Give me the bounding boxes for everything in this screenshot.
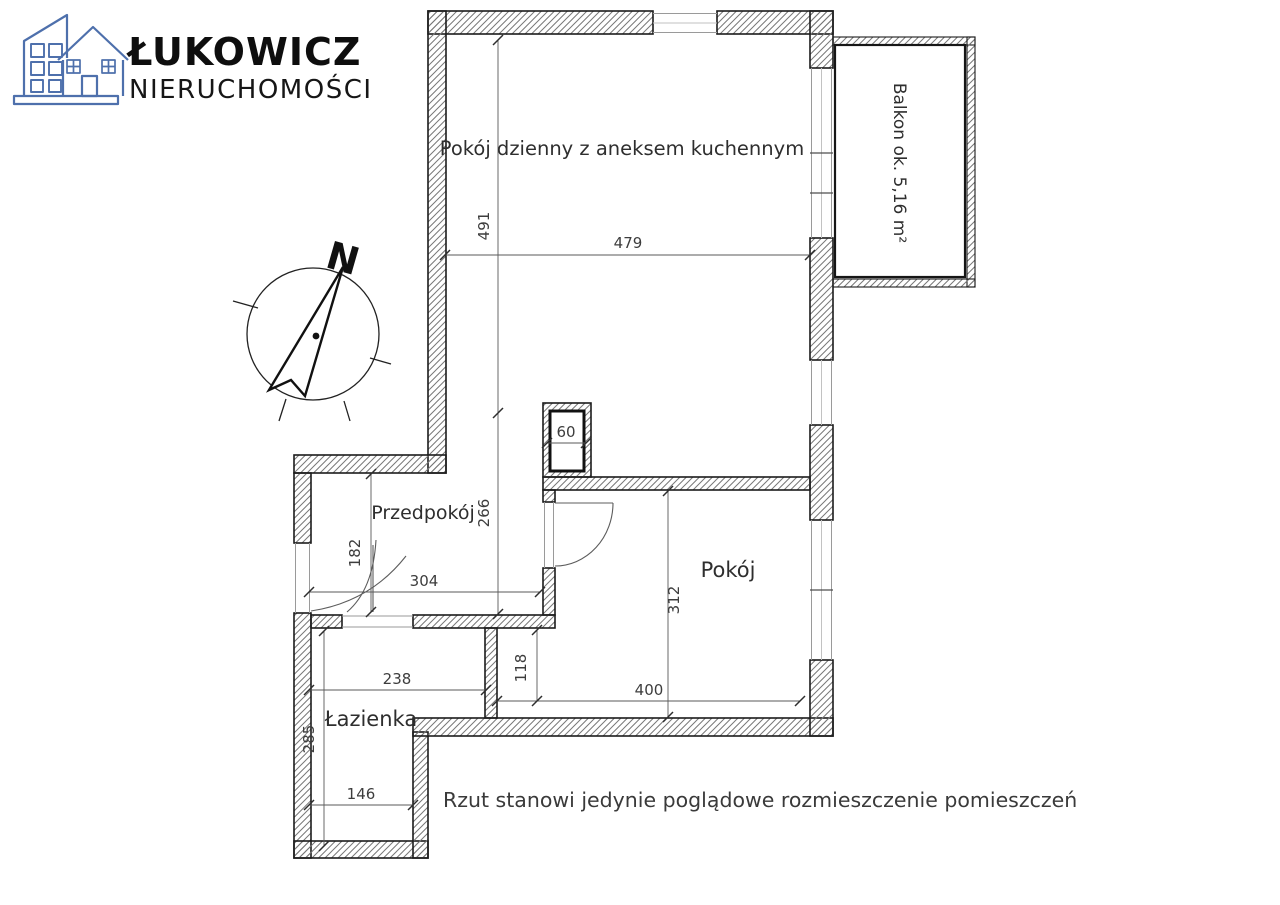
floorplan-page: { "brand": { "name": "ŁUKOWICZ", "subtit… [0,0,1280,905]
wall-segment [413,732,428,858]
wall-segment [543,568,555,615]
wall-segment [833,279,975,287]
disclaimer-text: Rzut stanowi jedynie poglądowe rozmieszc… [443,788,1077,812]
wall-segment [543,477,810,490]
wall-segment [294,841,428,858]
dimension-label: 312 [665,586,683,615]
north-compass: N [233,233,391,421]
dimension-label: 285 [300,725,318,754]
floor-plan: N [0,0,1280,905]
wall-segment [485,628,497,718]
wall-segment [967,37,975,287]
wall-segment [810,238,833,360]
room-door [545,502,614,568]
window-top [653,14,717,33]
room-label-bathroom: Łazienka [324,707,417,731]
dimension-label: 266 [475,499,493,528]
room-label-hall: Przedpokój [371,502,475,524]
dimension-label: 60 [556,423,575,441]
wall-segment [810,11,833,68]
compass-center-dot [313,333,320,340]
wall-segment [413,718,833,736]
room-label-living: Pokój dzienny z aneksem kuchennym [440,137,804,160]
wall-segment [294,473,311,543]
north-arrow [269,267,343,396]
room-label-room: Pokój [701,558,756,582]
dimension-label: 491 [475,212,493,241]
shaft-duct [550,411,584,471]
wall-segment [810,425,833,520]
dimension-label: 118 [512,654,530,683]
wall-segment [428,11,653,34]
balcony-door-window [810,68,833,238]
bathroom-door [342,616,413,627]
north-label: N [321,233,364,284]
window-right-lower [810,520,833,660]
dimension-label: 400 [635,681,664,699]
dimension-label: 479 [614,234,643,252]
dimension-label: 182 [346,539,364,568]
dimension-label: 304 [410,572,439,590]
wall-segment [311,615,342,628]
wall-segment [810,660,833,736]
dimension-label: 146 [347,785,376,803]
wall-segment [294,455,446,473]
wall-segment [543,490,555,502]
wall-segment [413,615,555,628]
wall-segment [833,37,975,45]
room-label-balcony: Balkon ok. 5,16 m² [889,83,909,243]
window-right-middle [812,360,832,425]
dimension-label: 238 [383,670,412,688]
wall-segment [428,11,446,473]
